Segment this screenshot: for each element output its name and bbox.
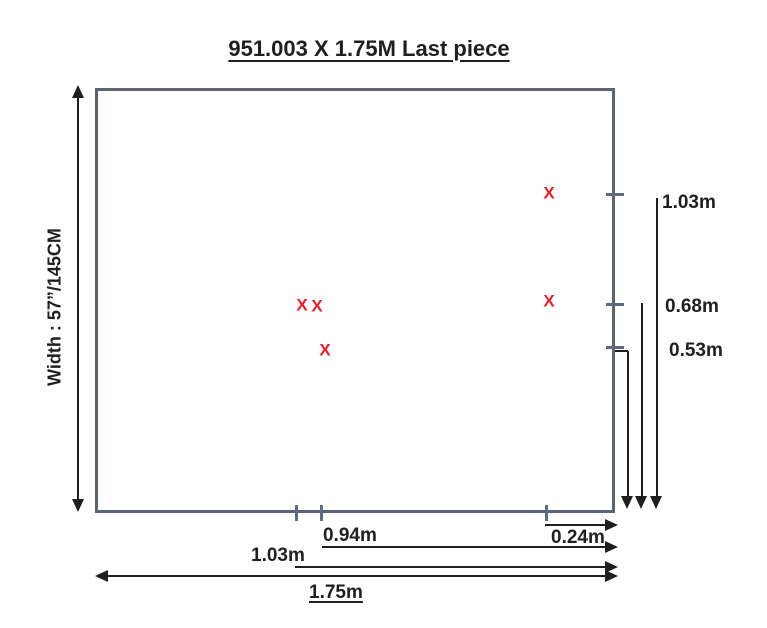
total-length-label: 1.75m — [309, 582, 363, 604]
fabric-outline — [95, 88, 615, 513]
arrow-right-icon — [605, 519, 618, 531]
edge-tick — [606, 193, 624, 196]
right-dimension-label: 1.03m — [662, 192, 716, 214]
fabric-width-label: Width : 57”/145CM — [45, 228, 66, 386]
right-dimension-line — [627, 351, 629, 498]
defect-mark: X — [543, 293, 554, 310]
fabric-defect-diagram: 951.003 X 1.75M Last piece Width : 57”/1… — [0, 0, 767, 628]
bottom-dimension-label: 0.94m — [323, 525, 377, 547]
total-length-dimension-line — [106, 575, 607, 577]
edge-tick — [606, 303, 624, 306]
defect-mark: X — [311, 298, 322, 315]
arrow-left-icon — [95, 570, 108, 582]
width-dimension-line — [77, 95, 79, 503]
arrow-up-icon — [72, 85, 84, 98]
arrow-down-icon — [635, 496, 647, 509]
arrow-right-icon — [605, 541, 618, 553]
defect-mark: X — [296, 297, 307, 314]
bottom-dimension-line — [545, 524, 606, 526]
bottom-dimension-line — [295, 566, 606, 568]
defect-mark: X — [543, 185, 554, 202]
edge-tick — [545, 505, 548, 521]
edge-tick — [295, 505, 298, 521]
edge-tick — [606, 346, 624, 349]
bottom-dimension-label: 1.03m — [251, 545, 305, 567]
arrow-right-icon — [605, 570, 618, 582]
right-dimension-line — [656, 198, 658, 498]
right-dimension-label: 0.53m — [669, 340, 723, 362]
diagram-title: 951.003 X 1.75M Last piece — [228, 36, 509, 62]
arrow-down-icon — [650, 496, 662, 509]
right-dimension-label: 0.68m — [665, 296, 719, 318]
arrow-down-icon — [72, 499, 84, 512]
edge-tick — [320, 505, 323, 521]
arrow-down-icon — [621, 496, 633, 509]
right-dimension-line — [641, 303, 643, 498]
defect-mark: X — [319, 342, 330, 359]
